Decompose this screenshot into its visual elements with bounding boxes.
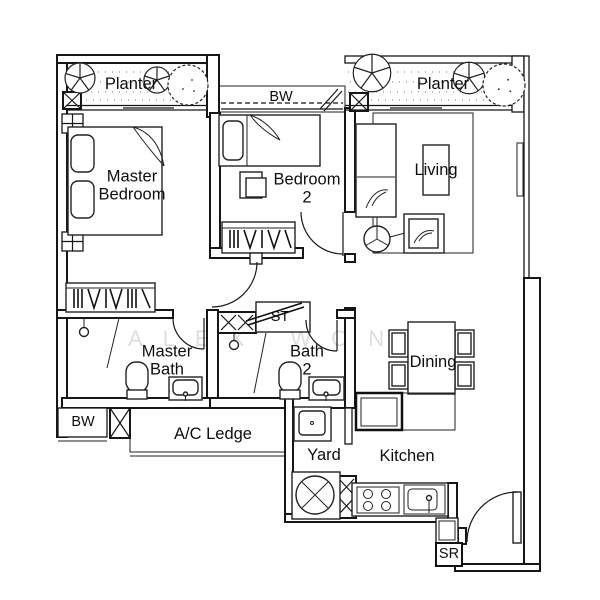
label-dining: Dining [410,353,457,371]
label-living: Living [414,161,457,179]
label-sr: SR [439,546,459,562]
label-yard: Yard [307,446,341,464]
label-kitchen: Kitchen [379,447,434,465]
wardrobe-bedroom2 [222,222,295,253]
column-icon [63,92,81,109]
label-bw-bottom: BW [71,414,94,430]
label-master-bedroom: Master Bedroom [99,168,166,205]
bedroom2-desk [240,172,266,198]
sink-master [169,377,202,401]
tree-icon [168,65,208,105]
tree-icon [483,64,525,106]
tree-icon [353,54,391,92]
armchair [404,214,444,253]
door-master-bedroom [212,253,262,307]
label-planter-right: Planter [417,75,469,93]
column-icon [110,408,130,438]
sink-bath2 [309,377,344,401]
label-bedroom-2: Bedroom 2 [274,171,341,208]
door-bedroom2 [301,212,343,256]
yard-sink [294,407,331,441]
fridge-counter [356,393,455,430]
label-planter-left: Planter [105,75,157,93]
window-icon [517,143,523,196]
label-master-bath: Master Bath [142,343,192,380]
fridge [356,393,402,430]
bedroom2-bed [219,115,320,166]
ceiling-fan-icon [364,217,405,252]
label-bw-top: BW [269,89,292,105]
dining-chair [455,362,474,389]
duct-icon [218,312,256,333]
dining-chair [389,362,408,389]
column-icon [350,93,368,111]
label-ac-ledge: A/C Ledge [174,425,252,443]
sofa [356,124,396,217]
tree-icon [65,63,95,93]
shower-master [80,318,120,368]
dining-chair [455,330,474,357]
washing-machine [292,472,340,519]
wardrobe-master [66,283,155,312]
kitchen-counter [352,483,458,543]
floor-plan: ALEX WONG [0,0,600,600]
dining-chair [389,330,408,357]
floor-plan-drawing: ALEX WONG [0,0,600,600]
label-st: ST [271,309,290,325]
door-entry [467,492,521,543]
label-bath-2: Bath 2 [290,343,324,380]
